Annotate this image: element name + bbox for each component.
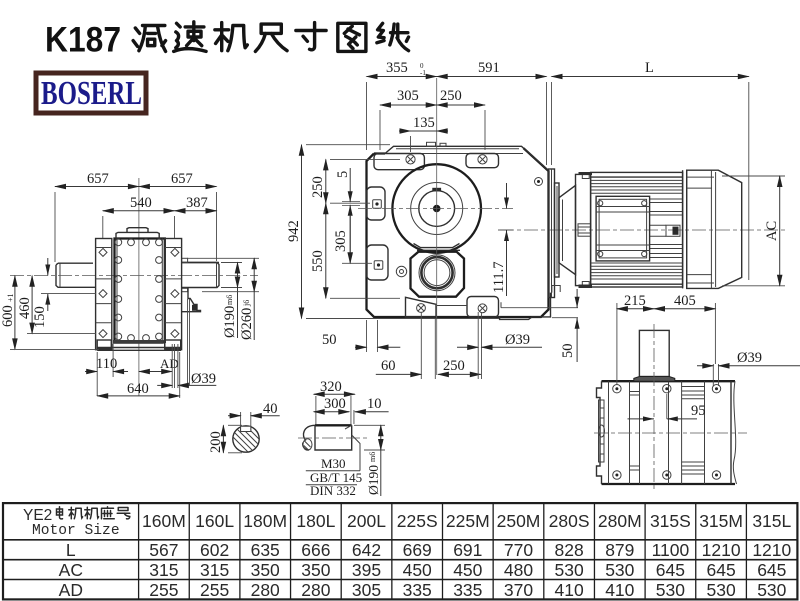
svg-text:450: 450 [453,560,482,580]
svg-text:530: 530 [554,560,583,580]
svg-text:+1: +1 [6,293,15,302]
svg-text:-1: -1 [420,69,426,77]
svg-text:530: 530 [656,580,685,600]
svg-text:410: 410 [554,580,583,600]
svg-text:BOSERL: BOSERL [41,75,142,112]
svg-text:255: 255 [200,580,229,600]
svg-text:602: 602 [200,540,229,560]
svg-text:1210: 1210 [752,540,791,560]
svg-text:m6: m6 [368,452,377,462]
svg-text:225S: 225S [397,511,438,531]
svg-text:j6: j6 [242,300,251,307]
svg-text:642: 642 [352,540,381,560]
svg-text:645: 645 [757,560,786,580]
svg-text:550: 550 [310,250,326,272]
svg-text:315L: 315L [752,511,791,531]
svg-text:5: 5 [335,171,351,178]
svg-text:315S: 315S [650,511,691,531]
svg-text:50: 50 [322,332,337,348]
svg-text:335: 335 [403,580,432,600]
svg-text:405: 405 [674,293,696,309]
svg-text:770: 770 [504,540,533,560]
svg-text:Ø39: Ø39 [191,371,216,387]
svg-text:L: L [645,60,654,76]
svg-text:200: 200 [208,431,224,453]
svg-text:Motor Size: Motor Size [32,523,120,539]
svg-text:40: 40 [263,401,278,417]
svg-text:657: 657 [87,171,109,187]
svg-text:L: L [66,540,76,560]
svg-text:300: 300 [324,396,346,412]
svg-text:M30: M30 [321,456,346,471]
svg-text:95: 95 [691,403,706,419]
svg-text:640: 640 [127,381,149,397]
svg-text:DIN 332: DIN 332 [310,483,356,498]
svg-text:111.7: 111.7 [491,261,507,293]
svg-text:567: 567 [149,540,178,560]
svg-text:280: 280 [301,580,330,600]
svg-text:60: 60 [381,358,396,374]
svg-text:280S: 280S [549,511,590,531]
svg-text:160M: 160M [142,511,186,531]
svg-text:YE2: YE2 [23,507,52,524]
svg-text:AD: AD [59,580,83,600]
svg-text:m6: m6 [225,295,234,305]
svg-text:828: 828 [554,540,583,560]
svg-text:395: 395 [352,560,381,580]
svg-text:669: 669 [403,540,432,560]
svg-text:410: 410 [605,580,634,600]
svg-text:305: 305 [352,580,381,600]
svg-text:530: 530 [706,580,735,600]
svg-text:50: 50 [560,344,576,359]
svg-text:AD: AD [160,356,179,371]
svg-text:1100: 1100 [652,540,690,560]
svg-text:250: 250 [443,358,465,374]
svg-text:1210: 1210 [702,540,741,560]
svg-text:450: 450 [403,560,432,580]
svg-text:250M: 250M [497,511,541,531]
svg-text:225M: 225M [446,511,490,531]
svg-text:K187: K187 [45,21,121,60]
svg-text:200L: 200L [347,511,386,531]
svg-text:315: 315 [200,560,229,580]
svg-text:180M: 180M [243,511,287,531]
svg-text:305: 305 [333,230,349,252]
svg-text:530: 530 [605,560,634,580]
svg-text:150: 150 [32,306,48,328]
svg-text:370: 370 [504,580,533,600]
svg-text:305: 305 [397,88,419,104]
svg-text:600: 600 [0,305,16,327]
svg-text:Ø190: Ø190 [222,306,238,338]
svg-text:160L: 160L [195,511,234,531]
svg-text:666: 666 [301,540,330,560]
svg-text:135: 135 [413,115,435,131]
svg-text:280: 280 [251,580,280,600]
svg-text:Ø190: Ø190 [366,465,381,495]
svg-text:320: 320 [320,379,342,395]
svg-text:657: 657 [171,171,193,187]
svg-text:355: 355 [386,60,408,76]
svg-text:460: 460 [17,297,33,319]
svg-text:10: 10 [367,396,382,412]
svg-text:250: 250 [440,88,462,104]
svg-text:942: 942 [286,220,302,242]
svg-text:250: 250 [310,176,326,198]
svg-text:645: 645 [656,560,685,580]
svg-text:335: 335 [453,580,482,600]
svg-text:280M: 280M [598,511,642,531]
svg-text:180L: 180L [296,511,335,531]
svg-text:879: 879 [605,540,634,560]
svg-text:215: 215 [624,293,646,309]
svg-text:315: 315 [149,560,178,580]
svg-text:645: 645 [706,560,735,580]
svg-text:540: 540 [130,195,152,211]
svg-text:480: 480 [504,560,533,580]
svg-text:Ø39: Ø39 [737,350,762,366]
svg-text:691: 691 [453,540,482,560]
svg-text:350: 350 [301,560,330,580]
svg-text:AC: AC [59,560,83,580]
svg-text:Ø260: Ø260 [239,308,255,340]
svg-text:350: 350 [251,560,280,580]
svg-text:110: 110 [96,356,117,372]
svg-text:255: 255 [149,580,178,600]
svg-text:387: 387 [186,195,208,211]
svg-text:315M: 315M [699,511,743,531]
svg-text:Ø39: Ø39 [505,332,530,348]
svg-text:AC: AC [764,221,780,241]
svg-text:635: 635 [251,540,280,560]
svg-text:530: 530 [757,580,786,600]
svg-text:591: 591 [478,60,500,76]
